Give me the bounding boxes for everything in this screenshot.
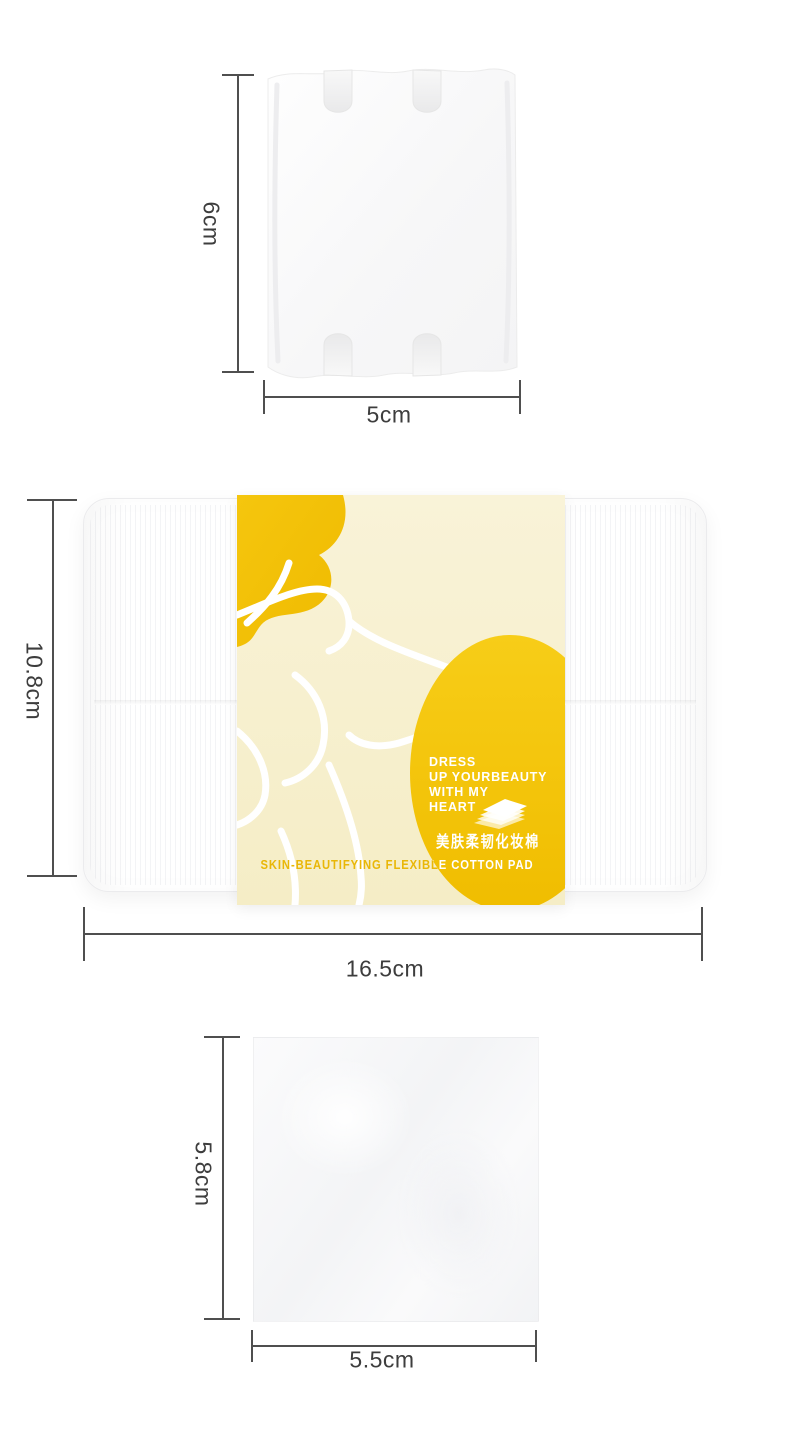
- slogan-line: DRESS: [429, 755, 476, 769]
- dimension-label-height: 10.8cm: [23, 642, 46, 720]
- dimension-label-width: 16.5cm: [346, 958, 424, 981]
- slogan-line: UP YOURBEAUTY: [429, 770, 547, 784]
- dimension-cap: [519, 380, 521, 414]
- dimension-cap: [27, 875, 77, 877]
- dimension-line: [84, 933, 703, 935]
- dimension-line: [52, 500, 54, 876]
- product-dimension-sheet: 6cm 5cm: [0, 0, 790, 1449]
- slogan-line: HEART: [429, 800, 476, 814]
- wrapper-band: DRESS UP YOURBEAUTY WITH MY HEART 美肤柔韧化妆…: [237, 495, 565, 905]
- dimension-line: [264, 396, 521, 398]
- dimension-label-height: 6cm: [200, 202, 223, 247]
- dimension-cap: [701, 907, 703, 961]
- product-name-cn: 美肤柔韧化妆棉: [436, 832, 540, 851]
- dimension-line: [237, 75, 239, 372]
- dimension-label-width: 5cm: [367, 404, 412, 427]
- slogan-line: WITH MY: [429, 785, 489, 799]
- dimension-label-height: 5.8cm: [192, 1141, 215, 1206]
- cotton-pad-top-image: [262, 63, 522, 383]
- dimension-cap: [204, 1318, 240, 1320]
- dimension-label-width: 5.5cm: [349, 1349, 414, 1372]
- cotton-pad-bottom-image: [253, 1037, 539, 1322]
- dimension-line: [222, 1037, 224, 1319]
- dimension-cap: [535, 1330, 537, 1362]
- dimension-cap: [222, 371, 254, 373]
